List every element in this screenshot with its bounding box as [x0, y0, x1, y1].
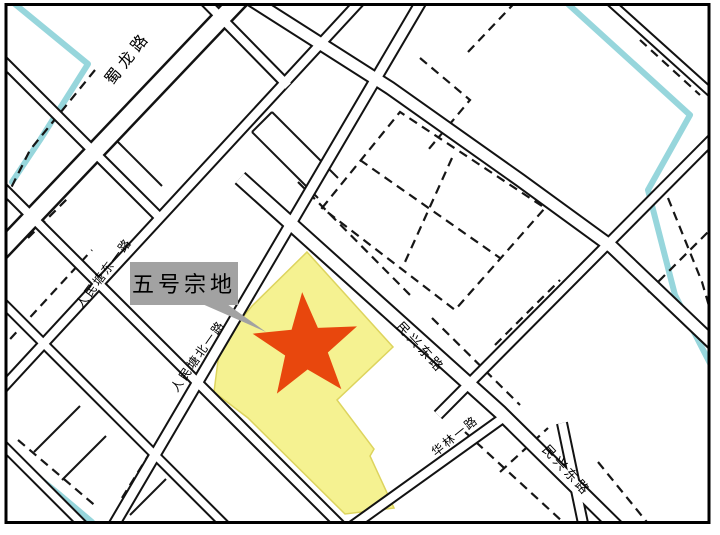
- parcel-location-map: 蜀龙路 人民塘东一路 人民塘北一路 民兴东路 民兴东路 华林一路 五号宗地: [0, 0, 720, 535]
- road-label-shulong: 蜀龙路: [101, 27, 155, 88]
- road-bottom-left: [0, 428, 110, 535]
- river-top-left: [10, 0, 88, 182]
- callout-label: 五号宗地: [132, 273, 236, 298]
- map-svg: 蜀龙路 人民塘东一路 人民塘北一路 民兴东路 民兴东路 华林一路 五号宗地: [0, 0, 720, 535]
